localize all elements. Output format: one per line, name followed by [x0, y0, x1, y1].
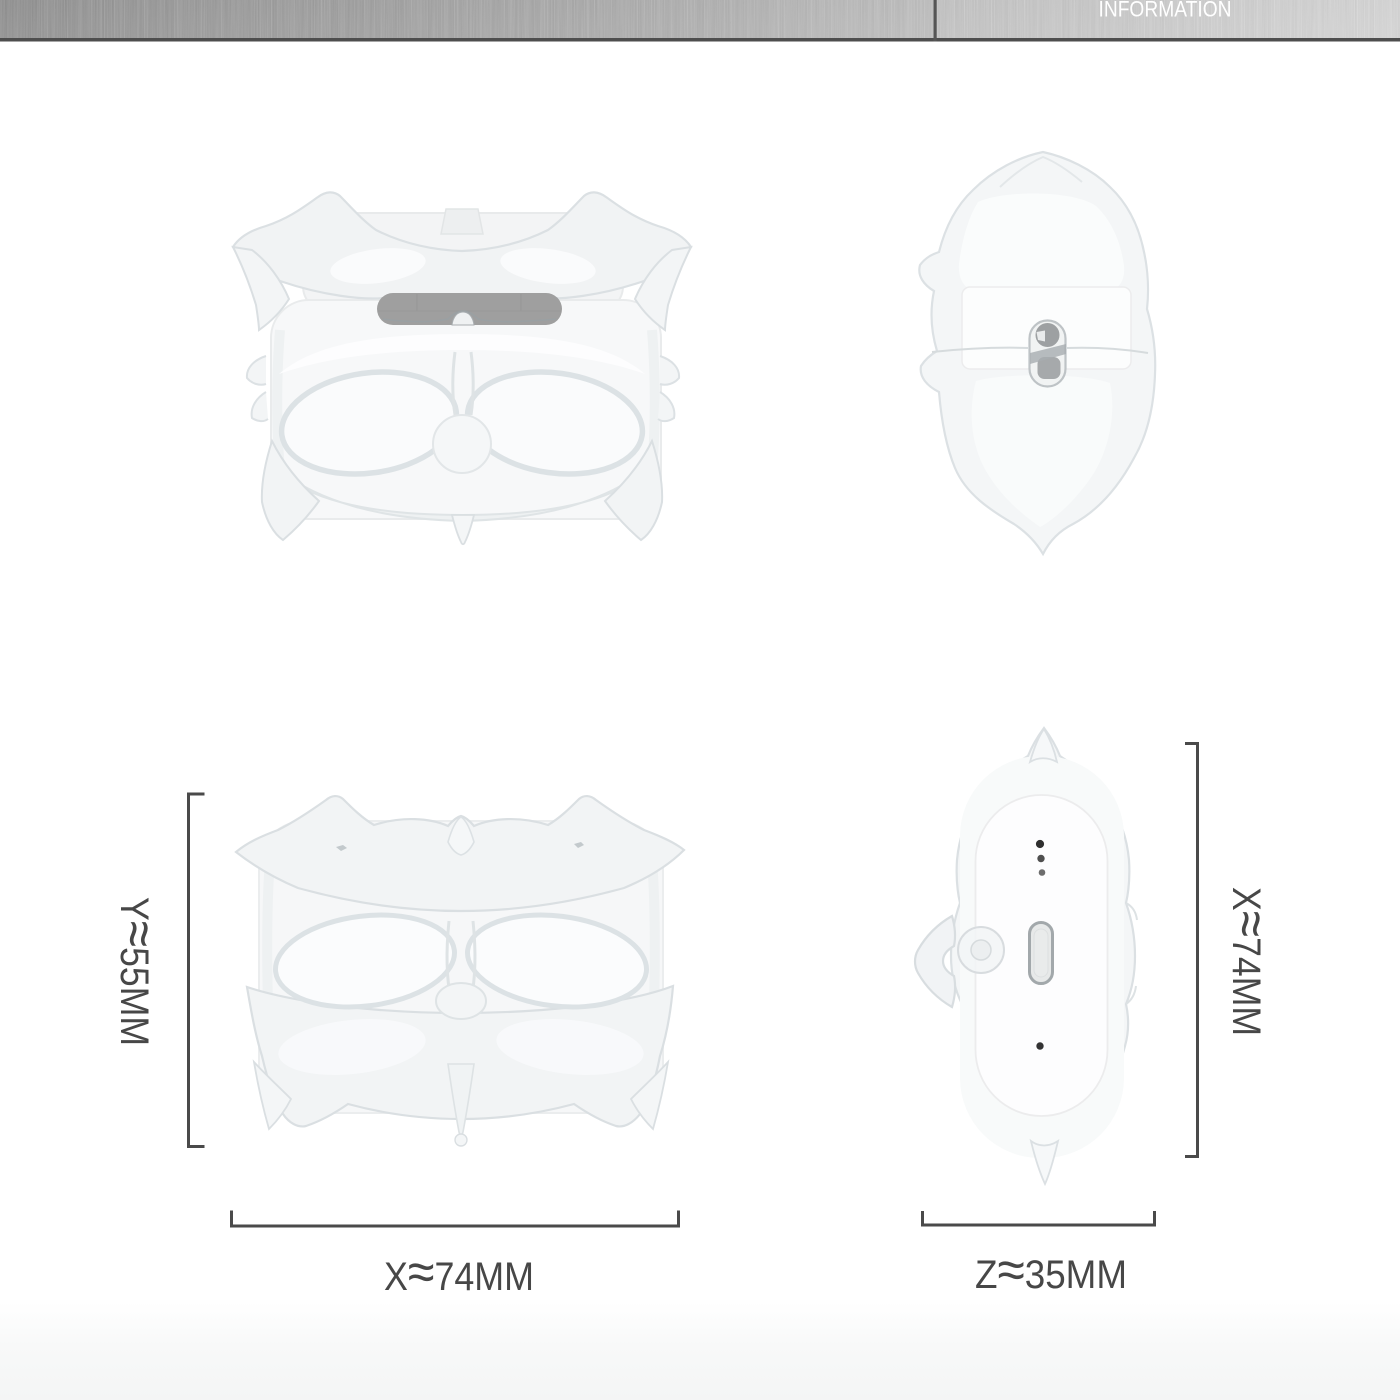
- svg-text:INFORMATION: INFORMATION: [1099, 0, 1232, 22]
